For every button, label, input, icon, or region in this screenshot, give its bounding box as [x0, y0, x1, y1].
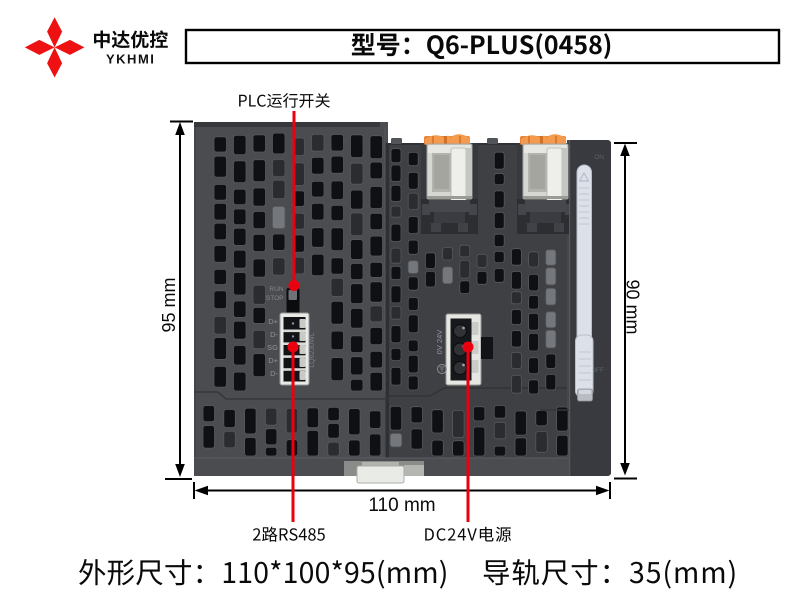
svg-text:ON: ON — [594, 154, 604, 161]
svg-text:SG: SG — [267, 343, 278, 352]
svg-text:RUN: RUN — [269, 286, 283, 293]
svg-text:0V 24V: 0V 24V — [435, 330, 444, 355]
svg-text:D-: D- — [270, 330, 278, 339]
svg-text:90 mm: 90 mm — [623, 279, 643, 334]
svg-text:LQ6230WL: LQ6230WL — [309, 332, 316, 368]
svg-text:110 mm: 110 mm — [368, 495, 435, 516]
svg-text:D-: D- — [270, 369, 278, 378]
svg-text:D+: D+ — [268, 317, 278, 326]
svg-text:STOP: STOP — [266, 295, 284, 302]
svg-text:95 mm: 95 mm — [159, 277, 179, 332]
svg-text:D+: D+ — [268, 356, 278, 365]
svg-text:YKHMI: YKHMI — [106, 52, 155, 67]
